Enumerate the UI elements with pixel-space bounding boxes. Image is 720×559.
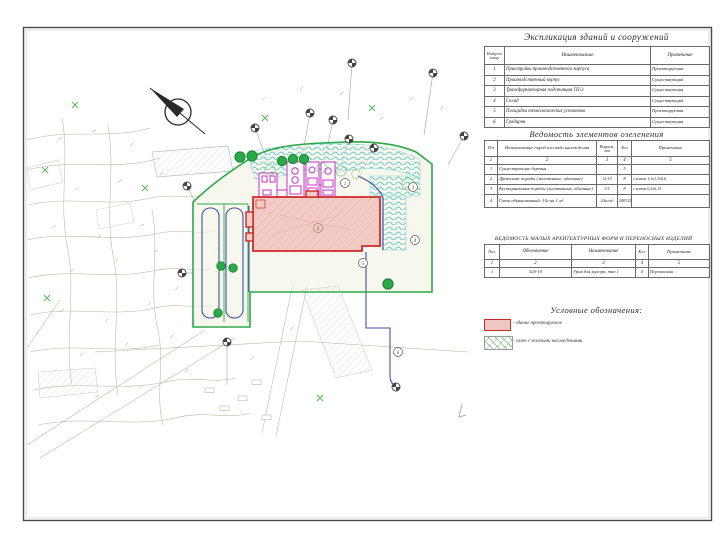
manhole-icon — [306, 109, 314, 117]
legend-title: Условные обозначения: — [484, 305, 709, 315]
table-row: 6ГрадирняСуществующая — [485, 117, 710, 128]
table-row: 1Существующие деревья5 — [485, 165, 710, 175]
table-cell — [632, 195, 710, 208]
survey-cross-icon — [72, 102, 78, 108]
scanned-plan-sheet: { "explication": { "title": "Экспликация… — [0, 0, 720, 559]
table-cell: Трансформаторная подстанция ТП-3 — [505, 86, 651, 97]
table-cell: 8 — [618, 185, 632, 195]
greenery-title: Ведомость элементов озеленения — [484, 129, 709, 139]
table-header-cell: Поз — [485, 141, 498, 157]
table-cell: 1 — [485, 268, 500, 278]
legend-label: - здание проектируемое — [513, 321, 562, 326]
plan-marker: 1 — [341, 179, 350, 188]
manhole-icon — [345, 135, 353, 143]
table-cell: 2 — [485, 75, 505, 86]
projected-building — [246, 191, 380, 251]
pencil-mark — [459, 404, 466, 417]
table-cell: 4 — [485, 195, 498, 208]
table-cell: Существующий — [651, 75, 710, 86]
table-cell: 4 — [618, 157, 632, 165]
column-number-row: 1 2 3 4 5 — [485, 157, 710, 165]
table-cell: 5 — [618, 165, 632, 175]
survey-cross-icon — [317, 395, 323, 401]
plan-marker: 3 — [409, 183, 418, 192]
greenery-table: Поз Наименование пород или вида насажден… — [484, 140, 710, 208]
table-header-cell: Примечание — [632, 141, 710, 157]
tree-icon — [235, 152, 245, 162]
table-cell: 3 — [485, 185, 498, 195]
table-cell: 0,4кг/м² — [597, 195, 618, 208]
survey-cross-icon — [369, 105, 375, 111]
manhole-icon — [370, 144, 378, 152]
table-cell: Существующий — [651, 96, 710, 107]
tree-icon — [277, 156, 286, 165]
table-row: 3Трансформаторная подстанция ТП-3Существ… — [485, 86, 710, 97]
legend-swatch-projected-building — [484, 319, 511, 331]
equipment-unit — [259, 173, 277, 197]
table-header-row: Номер по плану Наименование Примечание — [485, 47, 710, 65]
plan-marker: 6 — [394, 348, 403, 357]
table-cell: 6 — [485, 117, 505, 128]
table-cell: Урна для мусора, тип 1 — [572, 268, 636, 278]
table-header-row: Поз. Обозначение Наименование Кол. Приме… — [485, 245, 710, 260]
plan-marker: 4 — [411, 236, 420, 245]
plan-marker: 5 — [359, 259, 368, 268]
manhole-icon — [183, 182, 191, 190]
tree-icon — [383, 279, 393, 289]
table-cell: 1 — [485, 65, 505, 76]
legend-label: - газон с зелеными насаждениями — [513, 339, 582, 344]
table-header-cell: Кол. — [636, 245, 649, 260]
table-cell: 3 — [597, 157, 618, 165]
table-header-cell: Примечание — [649, 245, 710, 260]
maf-table: Поз. Обозначение Наименование Кол. Приме… — [484, 244, 710, 278]
manhole-icon — [329, 116, 337, 124]
table-cell: 5 — [636, 268, 649, 278]
table-cell: 1 — [485, 165, 498, 175]
table-cell: Производственный корпус — [505, 75, 651, 86]
table-cell: 2 — [498, 157, 597, 165]
table-cell: с комом 1,3х1,3х0,6 — [632, 175, 710, 185]
table-cell: 320-10 — [500, 268, 572, 278]
table-row: 3Кустарниковые породы (лиственные, обычн… — [485, 185, 710, 195]
table-cell — [597, 165, 618, 175]
table-row: 5Площадка технологических установокПроек… — [485, 107, 710, 118]
tree-icon — [229, 264, 238, 273]
table-row: 4Газон обыкновенный: 10г на 1 м²0,4кг/м²… — [485, 195, 710, 208]
table-cell: Кустарниковые породы (лиственные, обычны… — [498, 185, 597, 195]
table-row: 2Производственный корпусСуществующий — [485, 75, 710, 86]
table-cell: 3-5 — [597, 185, 618, 195]
survey-cross-icon — [44, 295, 50, 301]
table-header-cell: Поз. — [485, 245, 500, 260]
column-number-row: 1 2 3 4 5 — [485, 260, 710, 268]
table-header-row: Поз Наименование пород или вида насажден… — [485, 141, 710, 157]
tree-icon — [214, 309, 223, 318]
maf-title: ВЕДОМОСТЬ МАЛЫХ АРХИТЕКТУРНЫХ ФОРМ И ПЕР… — [481, 236, 706, 242]
manhole-icon — [348, 59, 356, 67]
table-cell: 4 — [485, 96, 505, 107]
equipment-unit — [287, 162, 304, 197]
tree-icon — [217, 262, 226, 271]
existing-building — [152, 146, 233, 177]
table-cell: Существующая — [651, 117, 710, 128]
table-header-cell: Наименование пород или вида насаждения — [498, 141, 597, 157]
svg-text:1: 1 — [344, 182, 347, 187]
table-row: 4СкладСуществующий — [485, 96, 710, 107]
table-cell: 3 — [572, 260, 636, 268]
manhole-icon — [429, 69, 437, 77]
table-cell: 5 — [485, 107, 505, 118]
table-cell: 12-15 — [597, 175, 618, 185]
table-cell: Переносная — [649, 268, 710, 278]
table-header-cell: Обозначение — [500, 245, 572, 260]
explication-table: Номер по плану Наименование Примечание 1… — [484, 46, 710, 128]
table-cell: 8 — [618, 175, 632, 185]
table-cell: 5 — [632, 157, 710, 165]
survey-cross-icon — [262, 115, 268, 121]
table-cell: 1 — [485, 157, 498, 165]
survey-cross-icon — [42, 167, 48, 173]
table-row: 1 320-10 Урна для мусора, тип 1 5 Перено… — [485, 268, 710, 278]
tree-icon — [247, 151, 257, 161]
table-cell — [632, 165, 710, 175]
legend-swatch-lawn — [484, 336, 513, 350]
table-header-cell: Возраст, лет — [597, 141, 618, 157]
table-header-cell: Кол — [618, 141, 632, 157]
table-cell: Проектируемая — [651, 65, 710, 76]
table-cell: Существующие деревья — [498, 165, 597, 175]
table-header-cell: Номер по плану — [485, 47, 505, 65]
table-cell: Склад — [505, 96, 651, 107]
tree-icon — [288, 154, 297, 163]
table-cell: 2 — [485, 175, 498, 185]
table-header-cell: Примечание — [651, 47, 710, 65]
table-cell: 2083/23 — [618, 195, 632, 208]
explication-title: Экспликация зданий и сооружений — [484, 32, 709, 42]
manhole-icon — [392, 383, 400, 391]
manhole-icon — [178, 269, 186, 277]
table-cell: 1 — [485, 260, 500, 268]
table-cell: Площадка технологических установок — [505, 107, 651, 118]
table-cell: 2 — [500, 260, 572, 268]
tree-icon — [299, 154, 308, 163]
table-row: 1Пристройка производственного корпусаПро… — [485, 65, 710, 76]
manhole-icon — [251, 124, 259, 132]
north-arrow-icon — [150, 88, 205, 134]
table-cell: Градирня — [505, 117, 651, 128]
table-cell: 5 — [649, 260, 710, 268]
table-cell: с комом 0,2х0,15 — [632, 185, 710, 195]
table-cell: 4 — [636, 260, 649, 268]
table-cell: Древесные породы (лиственные, обычные) — [498, 175, 597, 185]
table-header-cell: Наименование — [505, 47, 651, 65]
manhole-icon — [223, 338, 231, 346]
survey-cross-icon — [142, 185, 148, 191]
table-cell: Проектируемая — [651, 107, 710, 118]
table-cell: Газон обыкновенный: 10г на 1 м² — [498, 195, 597, 208]
table-header-cell: Наименование — [572, 245, 636, 260]
table-cell: Существующая — [651, 86, 710, 97]
survey-label-boxes — [205, 380, 271, 420]
manhole-icon — [460, 132, 468, 140]
table-cell: 3 — [485, 86, 505, 97]
table-cell: Пристройка производственного корпуса — [505, 65, 651, 76]
table-row: 2Древесные породы (лиственные, обычные)1… — [485, 175, 710, 185]
equipment-unit — [321, 162, 335, 197]
